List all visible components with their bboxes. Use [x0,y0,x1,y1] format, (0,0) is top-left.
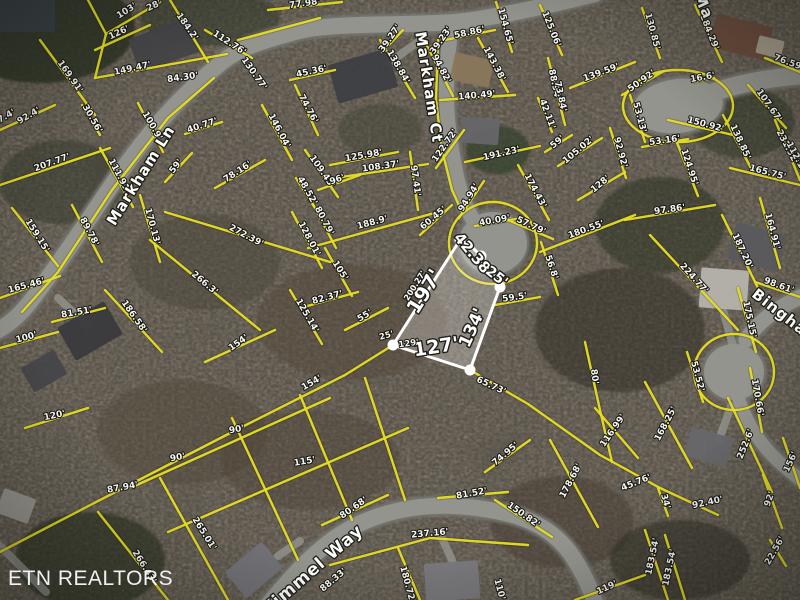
watermark-etn-realtors: ETN REALTORS [8,567,173,590]
aerial-map-canvas: 197'134'127'42.38'25'200.27' 103'28'184.… [0,0,800,600]
vignette [0,0,800,600]
aerial-plat-photo: 197'134'127'42.38'25'200.27' 103'28'184.… [0,0,800,600]
